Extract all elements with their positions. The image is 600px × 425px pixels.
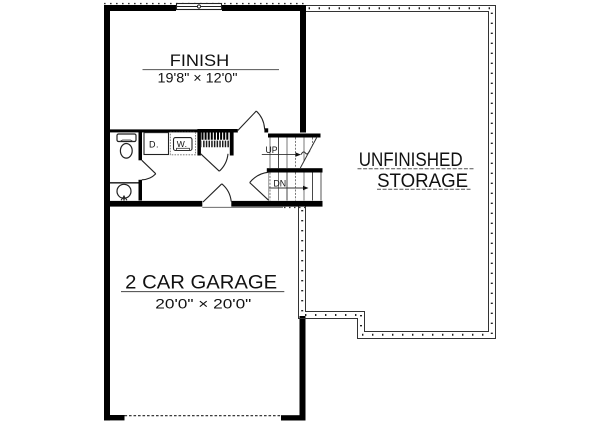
svg-text:20'0" × 20'0": 20'0" × 20'0" xyxy=(155,296,251,312)
svg-text:D.: D. xyxy=(149,140,159,150)
svg-text:19'8" × 12'0": 19'8" × 12'0" xyxy=(158,70,238,86)
svg-text:FINISH: FINISH xyxy=(170,51,230,70)
svg-text:W.: W. xyxy=(177,139,188,149)
svg-text:2 CAR GARAGE: 2 CAR GARAGE xyxy=(125,272,277,294)
svg-text:UNFINISHED: UNFINISHED xyxy=(359,149,463,171)
